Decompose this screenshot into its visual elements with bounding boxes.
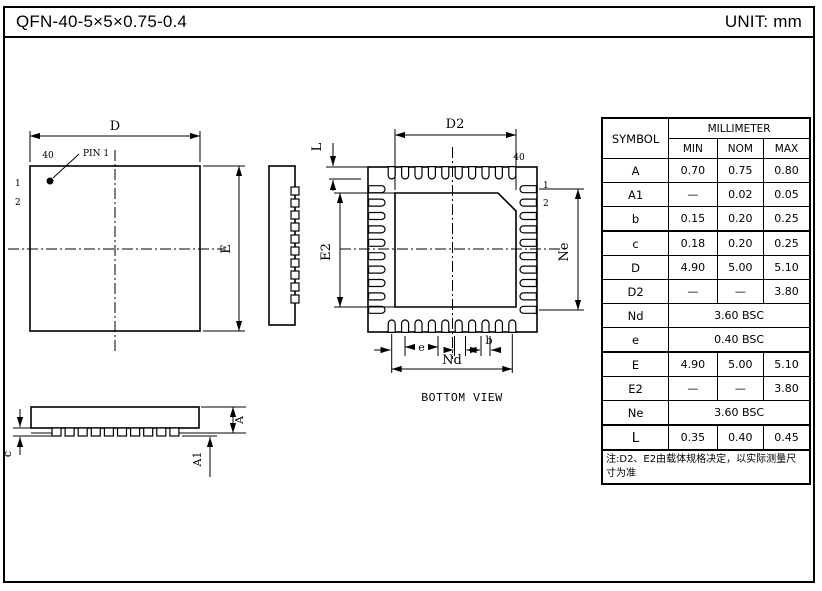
exposed-pad-outline bbox=[395, 193, 516, 307]
dim-label-E: E bbox=[219, 244, 234, 254]
symbol-cell: b bbox=[602, 207, 669, 232]
dim-label-E2: E2 bbox=[319, 243, 334, 261]
table-row: Nd 3.60 BSC bbox=[602, 304, 810, 328]
pin-number-2: 2 bbox=[543, 199, 549, 209]
symbol-cell: c bbox=[602, 231, 669, 256]
profile-body-outline bbox=[31, 407, 199, 428]
table-cell: 0.75 bbox=[717, 159, 763, 183]
table-cell: 0.18 bbox=[669, 231, 717, 256]
dim-label-c: c bbox=[1, 451, 14, 457]
symbol-cell: D2 bbox=[602, 280, 669, 304]
table-cell: 0.20 bbox=[717, 207, 763, 232]
table-cell: 3.60 BSC bbox=[669, 401, 810, 426]
table-cell: 0.40 bbox=[717, 425, 763, 450]
bottom-view-caption: BOTTOM VIEW bbox=[421, 392, 502, 405]
table-row: D 4.90 5.00 5.10 bbox=[602, 256, 810, 280]
dim-label-Nd: Nd bbox=[442, 353, 462, 368]
pin-number-1: 1 bbox=[543, 181, 549, 191]
dim-label-A: A bbox=[233, 415, 246, 425]
table-row: e 0.40 BSC bbox=[602, 328, 810, 353]
table-cell: — bbox=[717, 280, 763, 304]
table-cell: 0.35 bbox=[669, 425, 717, 450]
symbol-cell: L bbox=[602, 425, 669, 450]
table-cell: 0.25 bbox=[764, 207, 810, 232]
drawing-sheet: QFN-40-5×5×0.75-0.4 UNIT: mm D E bbox=[0, 0, 822, 591]
table-cell: 0.45 bbox=[764, 425, 810, 450]
table-cell: 0.02 bbox=[717, 183, 763, 207]
table-row: A1 — 0.02 0.05 bbox=[602, 183, 810, 207]
top-view: D E 40 PIN 1 1 2 bbox=[8, 119, 245, 353]
table-cell: 3.60 BSC bbox=[669, 304, 810, 328]
dim-label-Ne: Ne bbox=[557, 242, 572, 261]
table-header-row: SYMBOL MILLIMETER bbox=[602, 118, 810, 139]
pin40-label: 40 bbox=[513, 153, 525, 163]
table-note-row: 注:D2、E2由载体规格决定，以实际测量尺寸为准 bbox=[602, 450, 810, 484]
table-note: 注:D2、E2由载体规格决定，以实际测量尺寸为准 bbox=[602, 450, 810, 484]
header-symbol: SYMBOL bbox=[602, 118, 669, 159]
table-row: D2 — — 3.80 bbox=[602, 280, 810, 304]
header-nom: NOM bbox=[717, 139, 763, 159]
symbol-cell: e bbox=[602, 328, 669, 353]
table-cell: 0.20 bbox=[717, 231, 763, 256]
table-cell: 0.70 bbox=[669, 159, 717, 183]
symbol-cell: E bbox=[602, 352, 669, 377]
table-row: A 0.70 0.75 0.80 bbox=[602, 159, 810, 183]
dimension-table: SYMBOL MILLIMETER MIN NOM MAX A 0.70 0.7… bbox=[601, 117, 811, 485]
profile-pins bbox=[52, 428, 179, 436]
table-cell: 5.00 bbox=[717, 352, 763, 377]
symbol-cell: E2 bbox=[602, 377, 669, 401]
table-cell: 0.80 bbox=[764, 159, 810, 183]
table-row: b 0.15 0.20 0.25 bbox=[602, 207, 810, 232]
symbol-cell: A bbox=[602, 159, 669, 183]
symbol-cell: A1 bbox=[602, 183, 669, 207]
table-cell: — bbox=[669, 377, 717, 401]
bottom-view: D2 L E2 Ne 40 1 2 bbox=[310, 117, 584, 405]
pin-number-1: 1 bbox=[15, 179, 21, 189]
header-millimeter: MILLIMETER bbox=[669, 118, 810, 139]
dim-label-D: D bbox=[110, 119, 120, 134]
table-cell: 3.80 bbox=[764, 377, 810, 401]
table-cell: 0.40 BSC bbox=[669, 328, 810, 353]
pin40-label: 40 bbox=[42, 151, 54, 161]
pin1-label: PIN 1 bbox=[83, 149, 109, 159]
symbol-cell: Nd bbox=[602, 304, 669, 328]
table-cell: — bbox=[669, 183, 717, 207]
profile-view: c A A1 bbox=[1, 407, 246, 477]
table-cell: — bbox=[717, 377, 763, 401]
header-min: MIN bbox=[669, 139, 717, 159]
dim-label-b: b bbox=[485, 334, 492, 347]
dim-label-e: e bbox=[418, 341, 425, 354]
table-cell: 0.25 bbox=[764, 231, 810, 256]
pin-number-2: 2 bbox=[15, 198, 21, 208]
table-cell: 4.90 bbox=[669, 256, 717, 280]
table-cell: 5.10 bbox=[764, 352, 810, 377]
symbol-cell: D bbox=[602, 256, 669, 280]
table-cell: 0.05 bbox=[764, 183, 810, 207]
pin1-dot bbox=[47, 178, 54, 185]
table-row: Ne 3.60 BSC bbox=[602, 401, 810, 426]
table-cell: 5.00 bbox=[717, 256, 763, 280]
table-cell: 5.10 bbox=[764, 256, 810, 280]
table-row: E 4.90 5.00 5.10 bbox=[602, 352, 810, 377]
dim-label-D2: D2 bbox=[446, 117, 465, 132]
symbol-cell: Ne bbox=[602, 401, 669, 426]
table-cell: 4.90 bbox=[669, 352, 717, 377]
dim-label-A1: A1 bbox=[191, 452, 204, 468]
table-cell: — bbox=[669, 280, 717, 304]
side-view bbox=[269, 166, 299, 325]
header-max: MAX bbox=[764, 139, 810, 159]
table-cell: 3.80 bbox=[764, 280, 810, 304]
table-row: c 0.18 0.20 0.25 bbox=[602, 231, 810, 256]
table-cell: 0.15 bbox=[669, 207, 717, 232]
dim-label-L: L bbox=[310, 142, 325, 151]
table-row: E2 — — 3.80 bbox=[602, 377, 810, 401]
table-row: L 0.35 0.40 0.45 bbox=[602, 425, 810, 450]
